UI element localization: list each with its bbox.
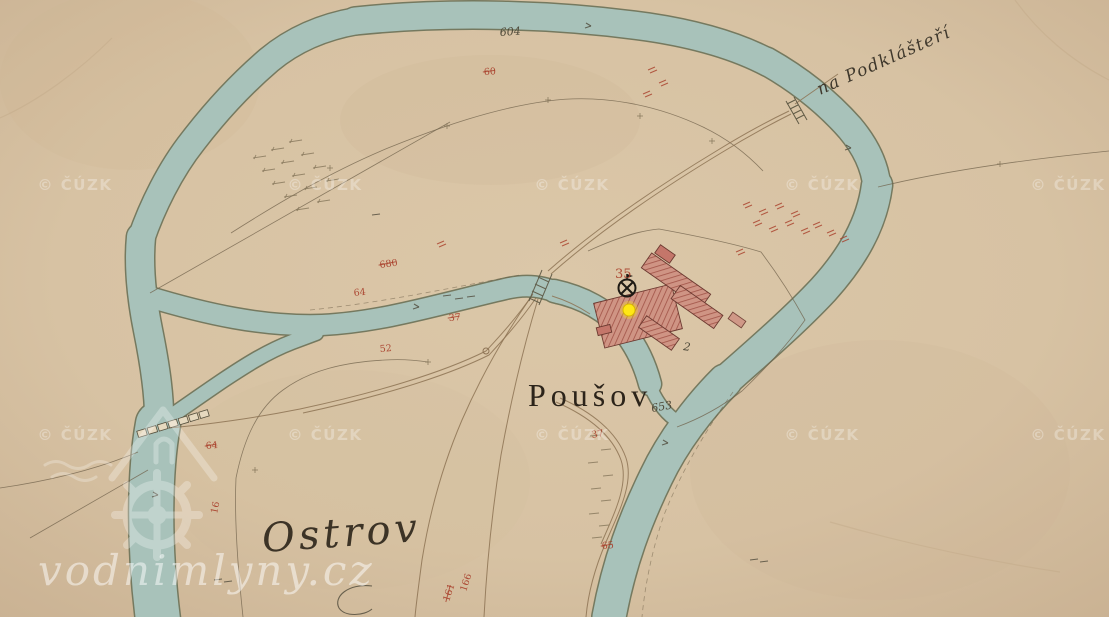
cuzk-watermark: © ČÚZK (535, 425, 610, 444)
map-marker[interactable] (620, 301, 638, 319)
parcel-number-red: 35 (615, 267, 632, 282)
cuzk-watermark: © ČÚZK (1031, 175, 1106, 194)
cadastral-map: Poušov Ostrov na Podklášteří 35606806437… (0, 0, 1109, 617)
cuzk-watermark: © ČÚZK (535, 175, 610, 194)
parcel-number-red: 52 (379, 343, 392, 355)
cuzk-watermark: © ČÚZK (785, 175, 860, 194)
vodnimlyny-watermark-text: vodnimlyny.cz (38, 546, 375, 595)
mill-wheel-icon (115, 473, 199, 557)
cuzk-watermark: © ČÚZK (288, 425, 363, 444)
cuzk-watermark: © ČÚZK (38, 425, 113, 444)
label-pousov: Poušov (528, 377, 652, 413)
cuzk-watermark: © ČÚZK (1031, 425, 1106, 444)
parcel-number-red: 64 (353, 287, 366, 299)
cuzk-watermark: © ČÚZK (785, 425, 860, 444)
cuzk-watermark: © ČÚZK (38, 175, 113, 194)
river-number-ink: 604 (499, 25, 521, 39)
cuzk-watermark: © ČÚZK (288, 175, 363, 194)
historic-map-viewport[interactable]: Poušov Ostrov na Podklášteří 35606806437… (0, 0, 1109, 617)
